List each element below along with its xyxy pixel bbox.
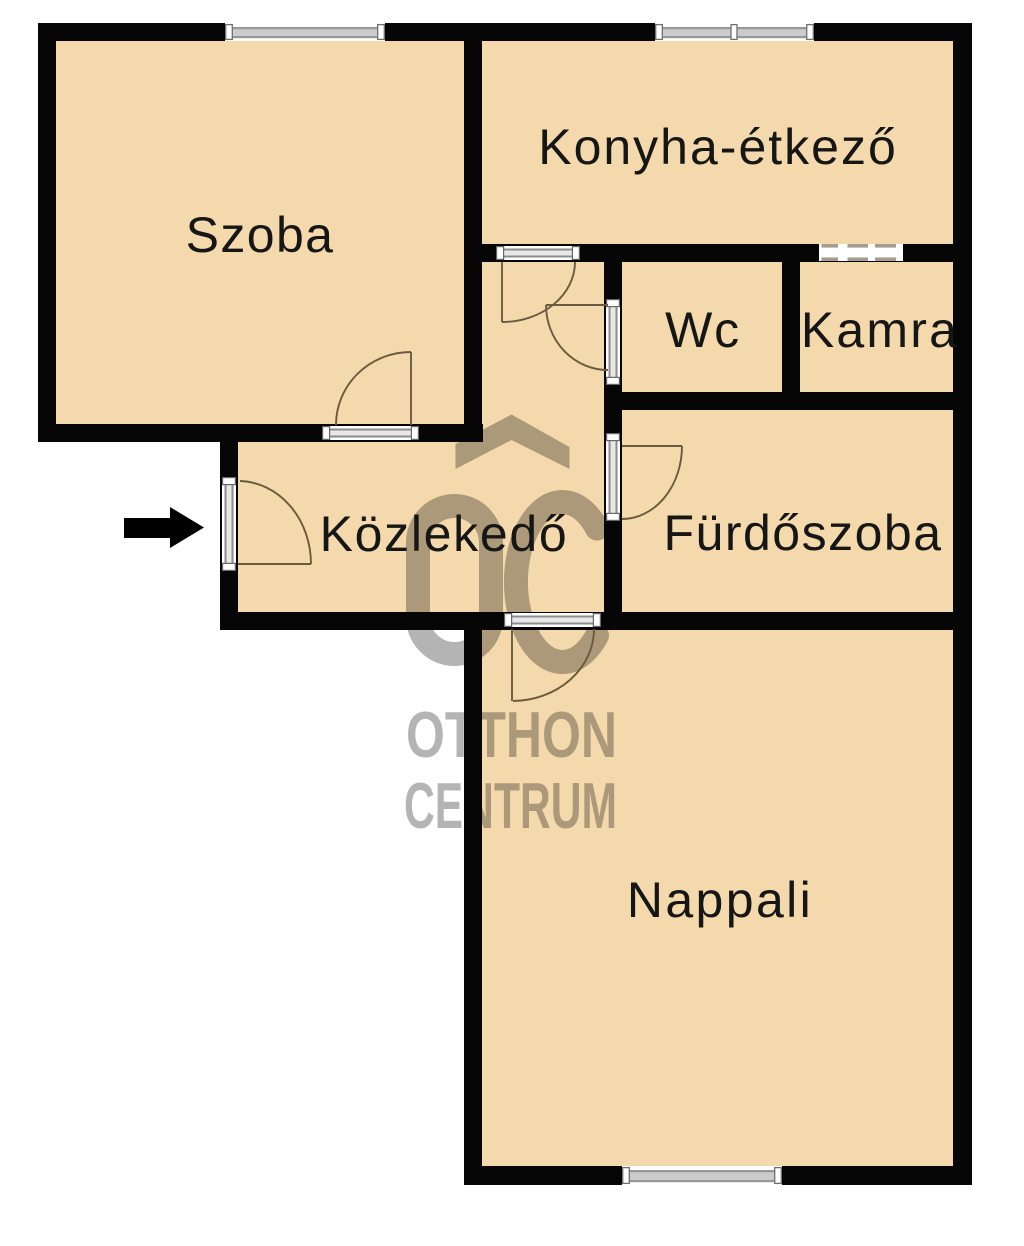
svg-text:Közlekedő: Közlekedő (320, 506, 569, 562)
svg-text:Fürdőszoba: Fürdőszoba (663, 505, 942, 561)
svg-text:Konyha-étkező: Konyha-étkező (538, 119, 898, 175)
svg-text:CENTRUM: CENTRUM (404, 769, 617, 842)
svg-text:Kamra: Kamra (801, 302, 959, 358)
svg-text:Wc: Wc (665, 302, 741, 358)
svg-text:Szoba: Szoba (186, 207, 335, 263)
svg-text:Nappali: Nappali (627, 872, 813, 928)
svg-text:OTTHON: OTTHON (406, 698, 617, 771)
